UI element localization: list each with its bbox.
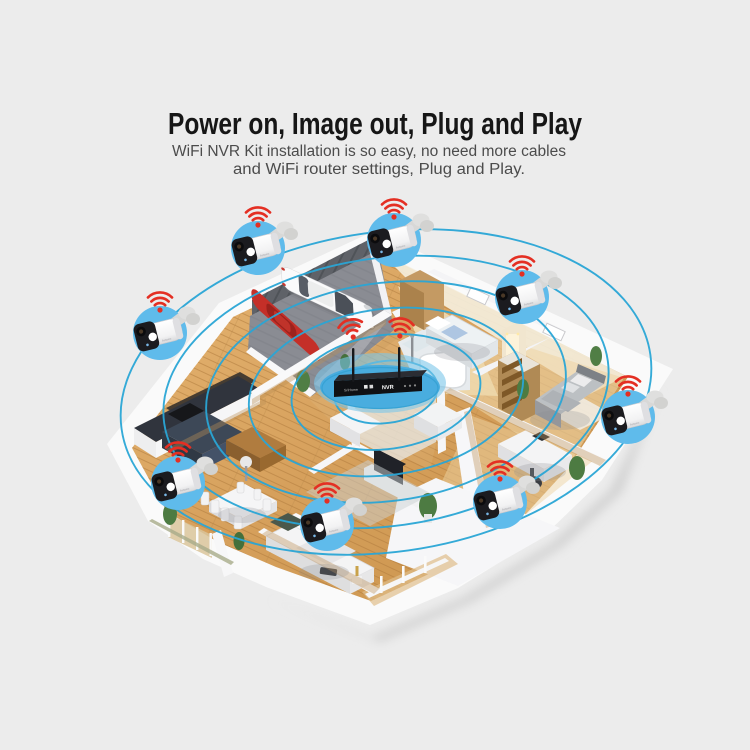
svg-text:WiFi NVR Kit installation is s: WiFi NVR Kit installation is so easy, no… — [172, 143, 566, 160]
svg-text:Power on, Image out, Plug and: Power on, Image out, Plug and Play — [168, 106, 583, 141]
svg-text:NVR: NVR — [382, 385, 394, 392]
svg-text:and WiFi router settings, Plug: and WiFi router settings, Plug and Play. — [233, 161, 525, 178]
svg-text:SriHome: SriHome — [344, 388, 358, 393]
